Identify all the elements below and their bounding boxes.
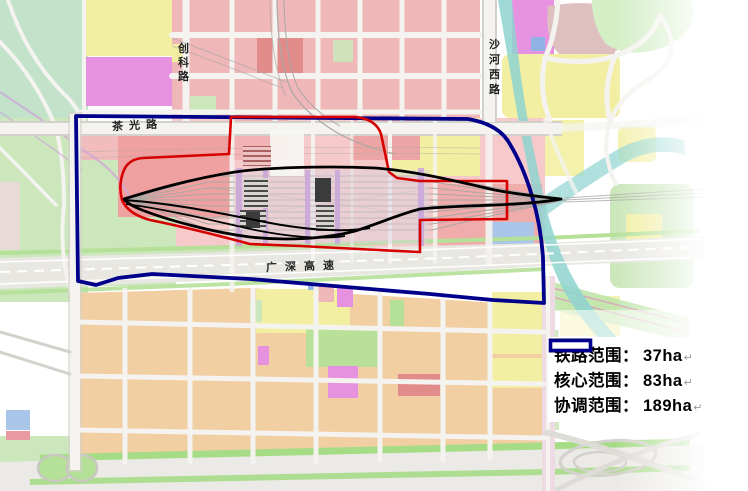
- legend-item-core: 核心范围：83ha↵: [554, 366, 703, 391]
- legend-text: 协调范围：189ha↵: [554, 392, 703, 416]
- return-mark-icon: ↵: [693, 402, 703, 414]
- coordination-extent-swatch: [548, 337, 594, 354]
- legend-text: 核心范围：83ha↵: [554, 367, 693, 391]
- return-mark-icon: ↵: [684, 352, 694, 364]
- road-label-chuangke: 创科路: [177, 41, 190, 83]
- platform-building: [243, 146, 271, 166]
- legend-value: 83ha: [643, 372, 683, 390]
- legend-value: 189ha: [643, 397, 692, 415]
- legend-item-coordination: 协调范围：189ha↵: [554, 391, 703, 416]
- station-area-planning-map: 创科路 茶光路 沙河西路 广深高速 铁路范围：37ha↵ 核心范围：83ha↵ …: [0, 0, 748, 491]
- legend-label: 核心范围：: [554, 372, 639, 390]
- legend-value: 37ha: [643, 347, 683, 365]
- legend: 铁路范围：37ha↵ 核心范围：83ha↵ 协调范围：189ha↵: [548, 337, 713, 422]
- station-building: [315, 178, 331, 202]
- legend-label: 协调范围：: [554, 397, 639, 415]
- platform-building: [316, 205, 334, 231]
- road-label-chaguang: 茶光路: [111, 117, 164, 134]
- platform-building: [244, 178, 268, 208]
- return-mark-icon: ↵: [684, 377, 694, 389]
